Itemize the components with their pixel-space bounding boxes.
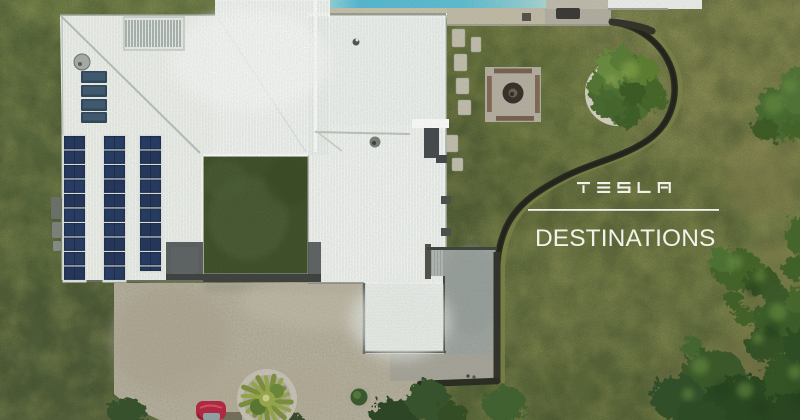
svg-text:DESTINATIONS: DESTINATIONS	[535, 225, 715, 252]
